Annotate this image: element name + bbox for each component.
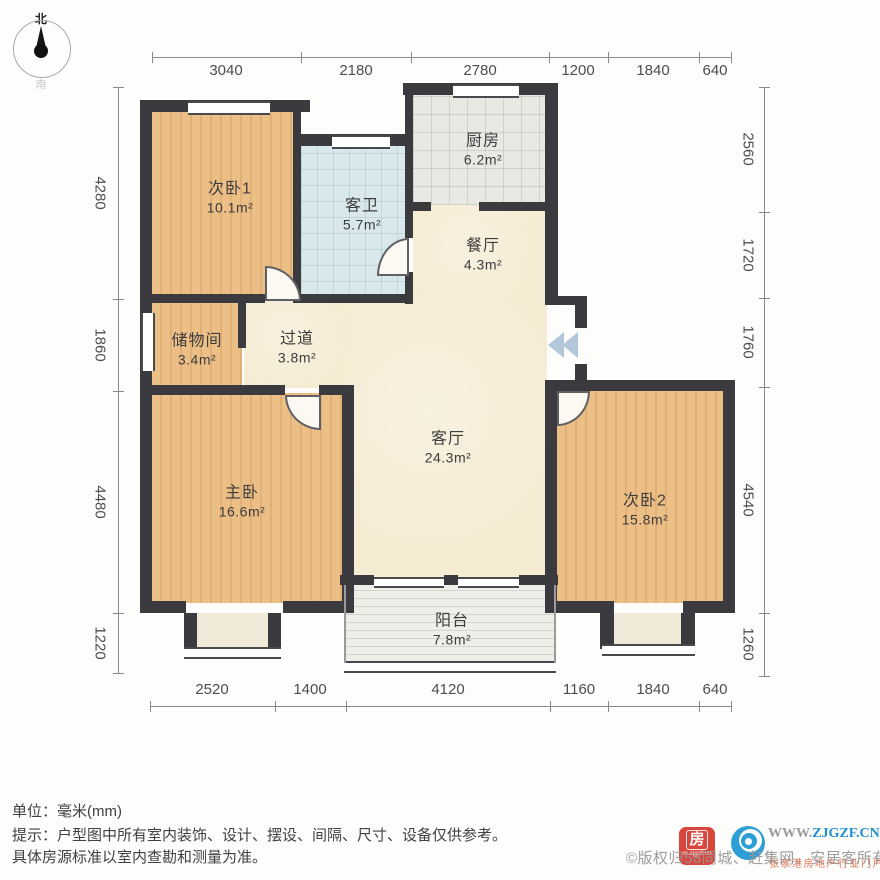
- room-name: 阳台: [433, 611, 471, 631]
- dim-label: 1840: [636, 62, 669, 79]
- dim-label: 640: [702, 62, 727, 79]
- wall: [545, 380, 735, 391]
- wall: [340, 575, 374, 585]
- room-label-dining: 餐厅 4.3m²: [464, 236, 502, 274]
- wall: [405, 202, 431, 211]
- window-balcony-door: [374, 577, 444, 588]
- window-balcony-rail: [344, 661, 556, 673]
- site-url: WWW.ZJGZF.CN: [768, 826, 880, 842]
- room-area: 10.1m²: [207, 199, 254, 217]
- dim-label: 4480: [92, 485, 109, 518]
- site-url-www: WWW.: [768, 826, 812, 841]
- room-area: 4.3m²: [464, 256, 502, 274]
- wall: [293, 103, 301, 303]
- room-label-storage: 储物间 3.4m²: [171, 331, 222, 369]
- room-name: 厨房: [464, 131, 502, 151]
- window-bedroom1: [188, 101, 270, 115]
- window-bay-master: [184, 647, 281, 659]
- compass-dot: [34, 44, 48, 58]
- wall: [140, 100, 152, 304]
- room-area: 24.3m²: [425, 449, 472, 467]
- dim-label: 1220: [92, 626, 109, 659]
- compass: 北 南: [8, 8, 74, 92]
- window-balcony-door: [458, 577, 519, 588]
- unit-note: 单位：毫米(mm): [12, 800, 122, 821]
- room-name: 次卧1: [207, 179, 254, 199]
- dim-label: 1760: [740, 325, 757, 358]
- wall: [405, 95, 413, 238]
- wall: [140, 294, 265, 303]
- room-area: 15.8m²: [622, 511, 669, 529]
- wall: [444, 575, 458, 585]
- dim-label: 1400: [293, 681, 326, 698]
- room-name: 客卫: [343, 196, 381, 216]
- room-area: 3.4m²: [171, 351, 222, 369]
- disclaimer-line1: 提示：户型图中所有室内装饰、设计、摆设、间隔、尺寸、设备仅供参考。: [12, 824, 507, 845]
- room-name: 客厅: [425, 429, 472, 449]
- wall: [140, 391, 152, 613]
- room-area: 6.2m²: [464, 151, 502, 169]
- room-area: 16.6m²: [219, 503, 266, 521]
- wall: [723, 380, 735, 613]
- dim-label: 2780: [463, 62, 496, 79]
- room-label-master: 主卧 16.6m²: [219, 483, 266, 521]
- copyright-watermark: ©版权归58同城、赶集网、安居客所有: [626, 847, 880, 868]
- room-label-bedroom1: 次卧1 10.1m²: [207, 179, 254, 217]
- dim-label: 1160: [563, 681, 595, 698]
- wall: [575, 296, 587, 328]
- room-name: 过道: [278, 329, 316, 349]
- dim-label: 4120: [431, 681, 464, 698]
- wall: [299, 294, 407, 303]
- entry-arrow-icon: [562, 332, 578, 358]
- balcony-side-rail: [554, 585, 556, 663]
- wall: [545, 83, 558, 304]
- dim-label: 1840: [636, 681, 669, 698]
- dim-label: 1200: [561, 62, 594, 79]
- room-area: 7.8m²: [433, 631, 471, 649]
- room-label-balcony: 阳台 7.8m²: [433, 611, 471, 649]
- room-name: 餐厅: [464, 236, 502, 256]
- balcony-side-rail: [344, 585, 346, 663]
- window-bath: [332, 135, 390, 149]
- wall: [140, 601, 186, 613]
- room-label-living: 客厅 24.3m²: [425, 429, 472, 467]
- room-label-bedroom2: 次卧2 15.8m²: [622, 491, 669, 529]
- window-kitchen: [453, 84, 519, 98]
- room-name: 主卧: [219, 483, 266, 503]
- window-bay-bedroom2: [602, 644, 695, 656]
- dim-label: 1260: [740, 627, 757, 660]
- room-name: 储物间: [171, 331, 222, 351]
- window-storage: [141, 313, 155, 371]
- wall: [479, 202, 547, 211]
- wall: [238, 294, 246, 348]
- room-name: 次卧2: [622, 491, 669, 511]
- floorplan-page: { "compass": { "north": "北", "south": "南…: [0, 0, 880, 880]
- dim-label: 1860: [92, 328, 109, 361]
- room-area: 5.7m²: [343, 216, 381, 234]
- room-area: 3.8m²: [278, 349, 316, 367]
- wall: [545, 380, 557, 613]
- dim-label: 3040: [209, 62, 242, 79]
- dim-label: 2520: [195, 681, 228, 698]
- room-label-kitchen: 厨房 6.2m²: [464, 131, 502, 169]
- dim-label: 640: [702, 681, 727, 698]
- room-label-hallway: 过道 3.8m²: [278, 329, 316, 367]
- compass-south-label: 南: [8, 76, 74, 92]
- dim-label: 4540: [740, 483, 757, 516]
- dim-label: 4280: [92, 176, 109, 209]
- room-label-bath: 客卫 5.7m²: [343, 196, 381, 234]
- disclaimer-line2: 具体房源标准以室内查勘和测量为准。: [12, 846, 267, 867]
- dim-label: 1720: [740, 238, 757, 271]
- dim-label: 2560: [740, 132, 757, 165]
- site-url-domain: ZJGZF.CN: [812, 826, 880, 841]
- dim-label: 2180: [339, 62, 372, 79]
- wall: [140, 385, 285, 395]
- wall: [683, 601, 735, 613]
